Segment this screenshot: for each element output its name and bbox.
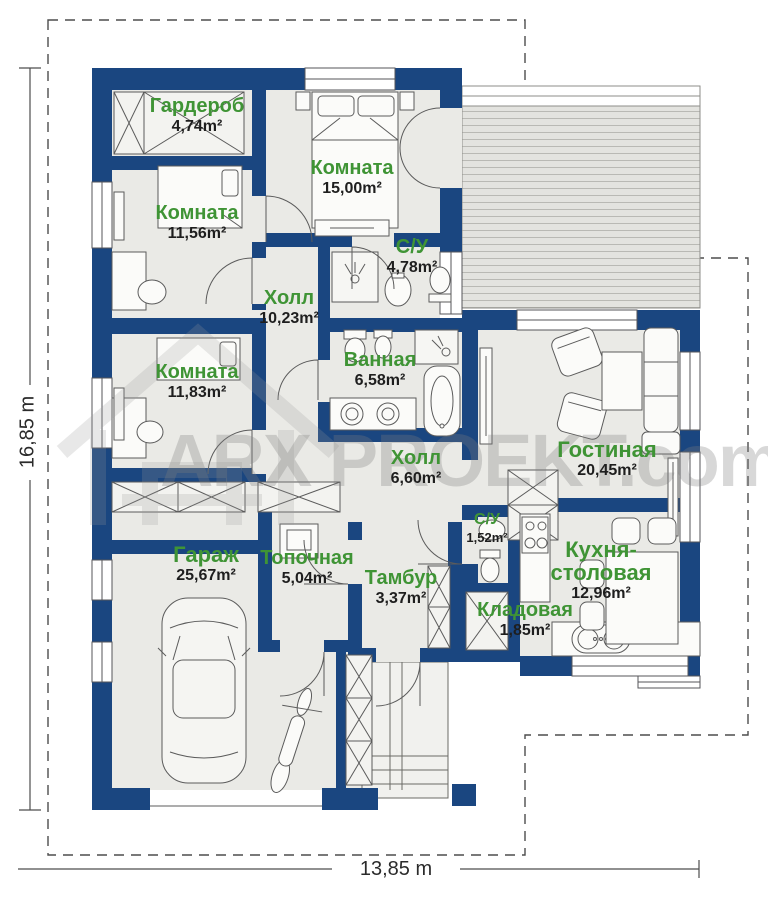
window-bay: [638, 676, 700, 688]
toilet: [480, 550, 500, 582]
double-bed: [296, 92, 414, 228]
window: [680, 452, 700, 542]
washbasin: [479, 520, 505, 540]
radiator: [114, 388, 124, 440]
closet-hatch: [346, 655, 372, 785]
closet-hatch: [112, 482, 245, 512]
bidet: [374, 330, 392, 358]
window: [92, 642, 112, 682]
chair: [580, 560, 604, 588]
double-washbasin: [330, 398, 416, 430]
sofa: [642, 328, 680, 454]
coffee-table: [602, 352, 642, 410]
chair: [648, 518, 676, 544]
wardrobe-hatch: [114, 92, 244, 154]
chair: [580, 602, 604, 630]
washbasin: [385, 273, 411, 306]
window: [572, 656, 688, 676]
bathtub: [424, 366, 460, 436]
window: [92, 378, 112, 448]
chair: [138, 280, 166, 304]
closet-hatch: [428, 566, 450, 648]
entrance-porch: [362, 662, 448, 798]
shower-mixer: [415, 330, 458, 364]
window: [517, 310, 637, 330]
dining-table: [606, 552, 678, 644]
window: [305, 68, 395, 90]
single-bed: [158, 166, 242, 228]
desk: [112, 252, 146, 310]
boiler: [280, 524, 318, 558]
floor-plan-drawing: [0, 0, 768, 900]
closet-hatch: [258, 482, 340, 512]
toilet: [429, 267, 451, 302]
floor-plan: ARX PROEKT.com Гардероб 4,74m² Комната 1…: [0, 0, 768, 900]
car-top-view: [158, 598, 250, 783]
window: [680, 352, 700, 430]
dimension-width-label: 13,85 m: [360, 858, 432, 881]
kitchen-stove: [522, 517, 548, 553]
window: [92, 560, 112, 600]
chair: [612, 518, 640, 544]
tv-stand: [480, 348, 492, 444]
dresser: [315, 220, 389, 236]
single-bed: [157, 338, 240, 380]
terrace-deck: [462, 86, 700, 308]
window: [92, 182, 112, 248]
shower: [332, 252, 378, 302]
radiator: [114, 192, 124, 240]
chair: [137, 421, 163, 443]
dimension-height-label: 16,85 m: [17, 396, 40, 468]
pantry-hatch: [466, 592, 508, 650]
toilet: [344, 330, 366, 362]
